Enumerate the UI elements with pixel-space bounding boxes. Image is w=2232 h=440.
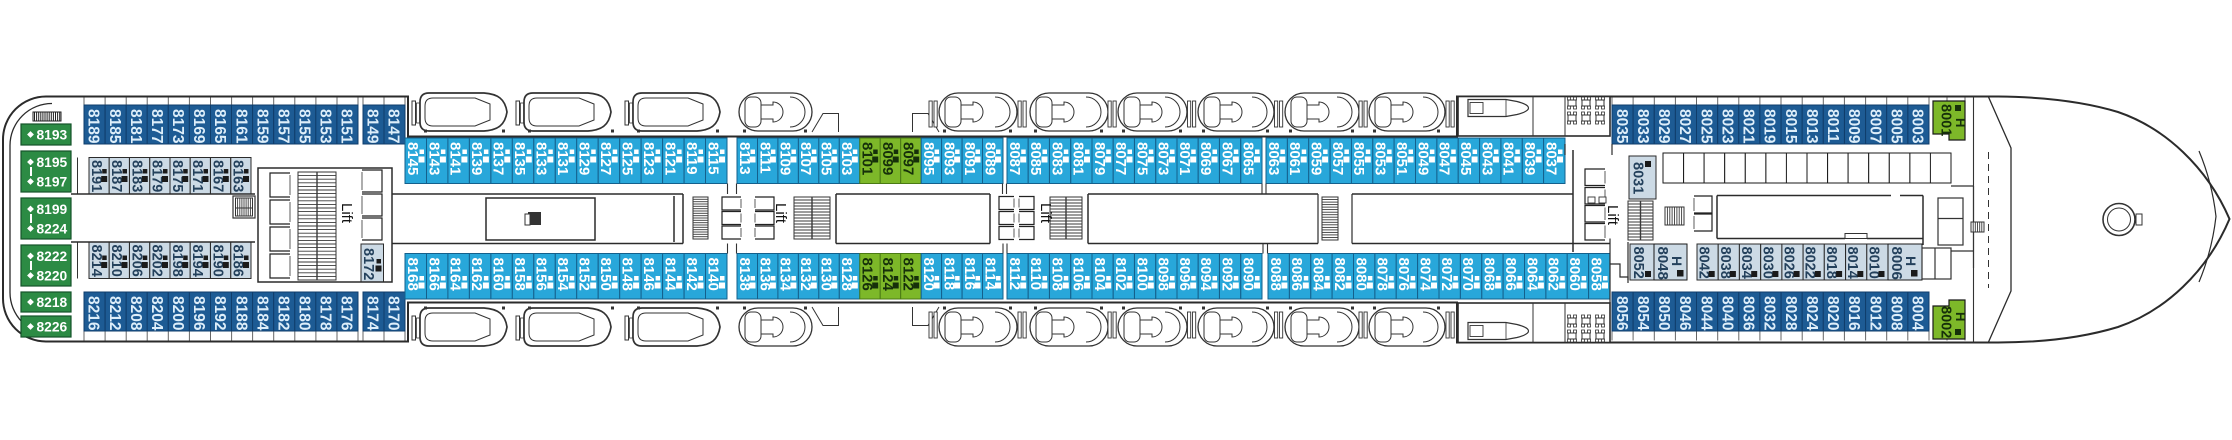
svg-text:8140: 8140	[704, 258, 721, 291]
svg-text:8032: 8032	[1761, 296, 1778, 330]
svg-text:8196: 8196	[190, 296, 207, 331]
svg-text:8055: 8055	[1350, 142, 1367, 175]
svg-text:8146: 8146	[640, 258, 657, 291]
svg-text:8133: 8133	[533, 142, 550, 175]
svg-text:Lift: Lift	[1604, 205, 1621, 226]
svg-text:8052: 8052	[1630, 247, 1646, 279]
svg-text:8074: 8074	[1416, 258, 1433, 292]
svg-text:8005: 8005	[1888, 109, 1905, 144]
svg-text:8148: 8148	[619, 258, 636, 291]
svg-text:8046: 8046	[1676, 296, 1693, 331]
svg-text:8166: 8166	[425, 258, 442, 291]
svg-text:8023: 8023	[1718, 109, 1735, 144]
svg-text:8185: 8185	[106, 109, 123, 144]
svg-text:8106: 8106	[1070, 258, 1087, 291]
svg-text:8139: 8139	[468, 142, 485, 175]
svg-text:8078: 8078	[1374, 258, 1391, 291]
svg-text:8204: 8204	[148, 296, 165, 331]
svg-text:8150: 8150	[597, 258, 614, 291]
svg-text:8082: 8082	[1331, 258, 1348, 291]
svg-text:8054: 8054	[1634, 296, 1651, 331]
svg-text:8198: 8198	[169, 245, 185, 277]
svg-text:8069: 8069	[1197, 142, 1214, 175]
svg-text:8123: 8123	[640, 142, 657, 175]
svg-text:8061: 8061	[1286, 142, 1303, 175]
svg-text:8056: 8056	[1613, 296, 1630, 331]
svg-text:H: H	[1903, 256, 1919, 266]
svg-text:8024: 8024	[1803, 296, 1820, 331]
svg-text:8186: 8186	[230, 245, 246, 277]
svg-text:8070: 8070	[1459, 258, 1476, 291]
svg-text:8027: 8027	[1676, 109, 1693, 143]
svg-text:8029: 8029	[1655, 109, 1672, 144]
svg-text:8094: 8094	[1197, 258, 1214, 292]
svg-text:H: H	[1953, 312, 1968, 321]
svg-text:Lift: Lift	[1037, 203, 1054, 224]
svg-text:8206: 8206	[128, 245, 144, 277]
svg-text:8004: 8004	[1909, 296, 1926, 331]
svg-text:8210: 8210	[108, 245, 124, 277]
svg-text:8137: 8137	[490, 142, 507, 175]
svg-text:8008: 8008	[1888, 296, 1905, 331]
svg-text:8066: 8066	[1502, 258, 1519, 291]
svg-text:8058: 8058	[1587, 258, 1604, 291]
svg-text:8168: 8168	[404, 258, 421, 291]
svg-text:8020: 8020	[1824, 296, 1841, 330]
svg-text:8188: 8188	[232, 296, 249, 331]
svg-text:8057: 8057	[1329, 142, 1346, 175]
svg-text:8019: 8019	[1761, 109, 1778, 144]
svg-text:8013: 8013	[1803, 109, 1820, 144]
svg-text:8059: 8059	[1308, 142, 1325, 175]
svg-text:8155: 8155	[296, 109, 313, 144]
svg-text:8088: 8088	[1267, 258, 1284, 291]
svg-text:8226: 8226	[37, 320, 68, 335]
svg-text:8147: 8147	[385, 109, 402, 143]
svg-text:8015: 8015	[1782, 109, 1799, 144]
svg-text:8102: 8102	[1112, 258, 1129, 291]
svg-text:8131: 8131	[554, 142, 571, 175]
svg-text:8143: 8143	[425, 142, 442, 175]
svg-text:8154: 8154	[554, 258, 571, 292]
svg-text:8144: 8144	[661, 258, 678, 292]
svg-text:8037: 8037	[1542, 142, 1559, 175]
svg-text:8048: 8048	[1654, 247, 1671, 280]
svg-text:8006: 8006	[1888, 247, 1905, 280]
svg-text:8165: 8165	[211, 109, 228, 144]
svg-text:8065: 8065	[1240, 142, 1257, 175]
svg-text:8050: 8050	[1655, 296, 1672, 330]
svg-text:8190: 8190	[209, 245, 225, 277]
svg-text:8192: 8192	[211, 296, 228, 330]
svg-text:8212: 8212	[106, 296, 123, 330]
svg-text:8039: 8039	[1521, 142, 1538, 175]
svg-text:8011: 8011	[1824, 109, 1841, 143]
svg-text:8115: 8115	[704, 142, 721, 175]
svg-text:8172: 8172	[360, 248, 376, 280]
svg-text:8084: 8084	[1310, 258, 1327, 292]
svg-text:8174: 8174	[364, 296, 381, 331]
svg-text:8160: 8160	[490, 258, 507, 291]
svg-text:8098: 8098	[1155, 258, 1172, 291]
svg-text:8063: 8063	[1265, 142, 1282, 175]
svg-text:8053: 8053	[1372, 142, 1389, 175]
svg-text:8108: 8108	[1048, 258, 1065, 291]
svg-text:8009: 8009	[1845, 109, 1862, 144]
svg-text:8086: 8086	[1288, 258, 1305, 291]
svg-text:8142: 8142	[683, 258, 700, 291]
svg-text:8156: 8156	[533, 258, 550, 291]
svg-text:8149: 8149	[364, 109, 381, 144]
svg-text:8158: 8158	[511, 258, 528, 291]
svg-text:8189: 8189	[85, 109, 102, 144]
svg-text:8075: 8075	[1133, 142, 1150, 175]
svg-text:8135: 8135	[511, 142, 528, 175]
svg-text:8218: 8218	[37, 295, 68, 310]
svg-text:8151: 8151	[338, 109, 355, 144]
svg-text:8016: 8016	[1845, 296, 1862, 331]
svg-text:8193: 8193	[37, 128, 68, 143]
svg-text:8092: 8092	[1218, 258, 1235, 291]
svg-text:8177: 8177	[148, 109, 165, 143]
svg-text:8001: 8001	[1938, 104, 1954, 136]
svg-text:8202: 8202	[149, 245, 165, 277]
svg-text:8072: 8072	[1438, 258, 1455, 291]
svg-text:8222: 8222	[37, 249, 68, 264]
svg-text:8076: 8076	[1395, 258, 1412, 291]
svg-text:8028: 8028	[1782, 296, 1799, 331]
svg-text:8077: 8077	[1112, 142, 1129, 175]
svg-text:8003: 8003	[1909, 109, 1926, 144]
svg-text:H: H	[1669, 256, 1685, 266]
svg-text:8040: 8040	[1718, 296, 1735, 330]
svg-text:8216: 8216	[85, 296, 102, 331]
svg-text:8045: 8045	[1457, 142, 1474, 175]
svg-text:8119: 8119	[683, 142, 700, 175]
svg-text:8129: 8129	[576, 142, 593, 175]
svg-text:8110: 8110	[1027, 258, 1044, 291]
svg-text:8033: 8033	[1634, 109, 1651, 144]
svg-text:H: H	[1953, 118, 1968, 127]
svg-text:8035: 8035	[1613, 109, 1630, 144]
svg-text:8083: 8083	[1048, 142, 1065, 175]
svg-text:8012: 8012	[1866, 296, 1883, 330]
svg-text:8153: 8153	[317, 109, 334, 144]
svg-text:8194: 8194	[189, 245, 205, 277]
svg-text:8176: 8176	[338, 296, 355, 331]
svg-text:8220: 8220	[37, 269, 68, 284]
svg-text:8152: 8152	[576, 258, 593, 291]
svg-text:8073: 8073	[1155, 142, 1172, 175]
svg-text:8002: 8002	[1938, 306, 1954, 338]
svg-text:8125: 8125	[619, 142, 636, 175]
svg-text:Lift: Lift	[772, 203, 789, 224]
svg-text:8100: 8100	[1133, 258, 1150, 291]
svg-text:8036: 8036	[1740, 296, 1757, 331]
svg-text:8080: 8080	[1352, 258, 1369, 291]
svg-text:8182: 8182	[274, 296, 291, 330]
svg-text:8007: 8007	[1866, 109, 1883, 143]
svg-text:8068: 8068	[1481, 258, 1498, 291]
svg-text:8178: 8178	[317, 296, 334, 331]
svg-text:8021: 8021	[1740, 109, 1757, 144]
svg-text:8064: 8064	[1523, 258, 1540, 292]
svg-text:8159: 8159	[253, 109, 270, 144]
svg-text:8184: 8184	[253, 296, 270, 331]
svg-text:8195: 8195	[37, 155, 68, 170]
svg-text:8208: 8208	[127, 296, 144, 331]
svg-text:8081: 8081	[1070, 142, 1087, 175]
svg-text:Lift: Lift	[338, 203, 355, 224]
svg-text:8044: 8044	[1697, 296, 1714, 331]
svg-text:8051: 8051	[1393, 142, 1410, 175]
svg-text:8145: 8145	[404, 142, 421, 175]
svg-text:8157: 8157	[274, 109, 291, 143]
svg-text:8025: 8025	[1697, 109, 1714, 144]
svg-text:8031: 8031	[1630, 162, 1646, 194]
svg-text:8173: 8173	[169, 109, 186, 144]
svg-text:8169: 8169	[190, 109, 207, 144]
svg-text:8121: 8121	[661, 142, 678, 175]
svg-text:8161: 8161	[232, 109, 249, 144]
svg-text:8181: 8181	[127, 109, 144, 144]
svg-text:8043: 8043	[1478, 142, 1495, 175]
svg-text:8199: 8199	[37, 202, 68, 217]
svg-text:8085: 8085	[1027, 142, 1044, 175]
svg-text:8049: 8049	[1414, 142, 1431, 175]
svg-text:8180: 8180	[296, 296, 313, 330]
svg-text:8060: 8060	[1566, 258, 1583, 291]
svg-text:8224: 8224	[37, 222, 68, 237]
svg-text:8197: 8197	[37, 175, 68, 190]
svg-text:8047: 8047	[1436, 142, 1453, 175]
svg-text:8127: 8127	[597, 142, 614, 175]
svg-text:8170: 8170	[385, 296, 402, 330]
svg-text:8067: 8067	[1218, 142, 1235, 175]
svg-text:8164: 8164	[447, 258, 464, 292]
svg-text:8062: 8062	[1545, 258, 1562, 291]
svg-text:8041: 8041	[1500, 142, 1517, 175]
svg-text:8162: 8162	[468, 258, 485, 291]
svg-text:8141: 8141	[447, 142, 464, 175]
svg-text:8200: 8200	[169, 296, 186, 330]
svg-text:8214: 8214	[88, 245, 104, 277]
svg-text:8090: 8090	[1240, 258, 1257, 291]
